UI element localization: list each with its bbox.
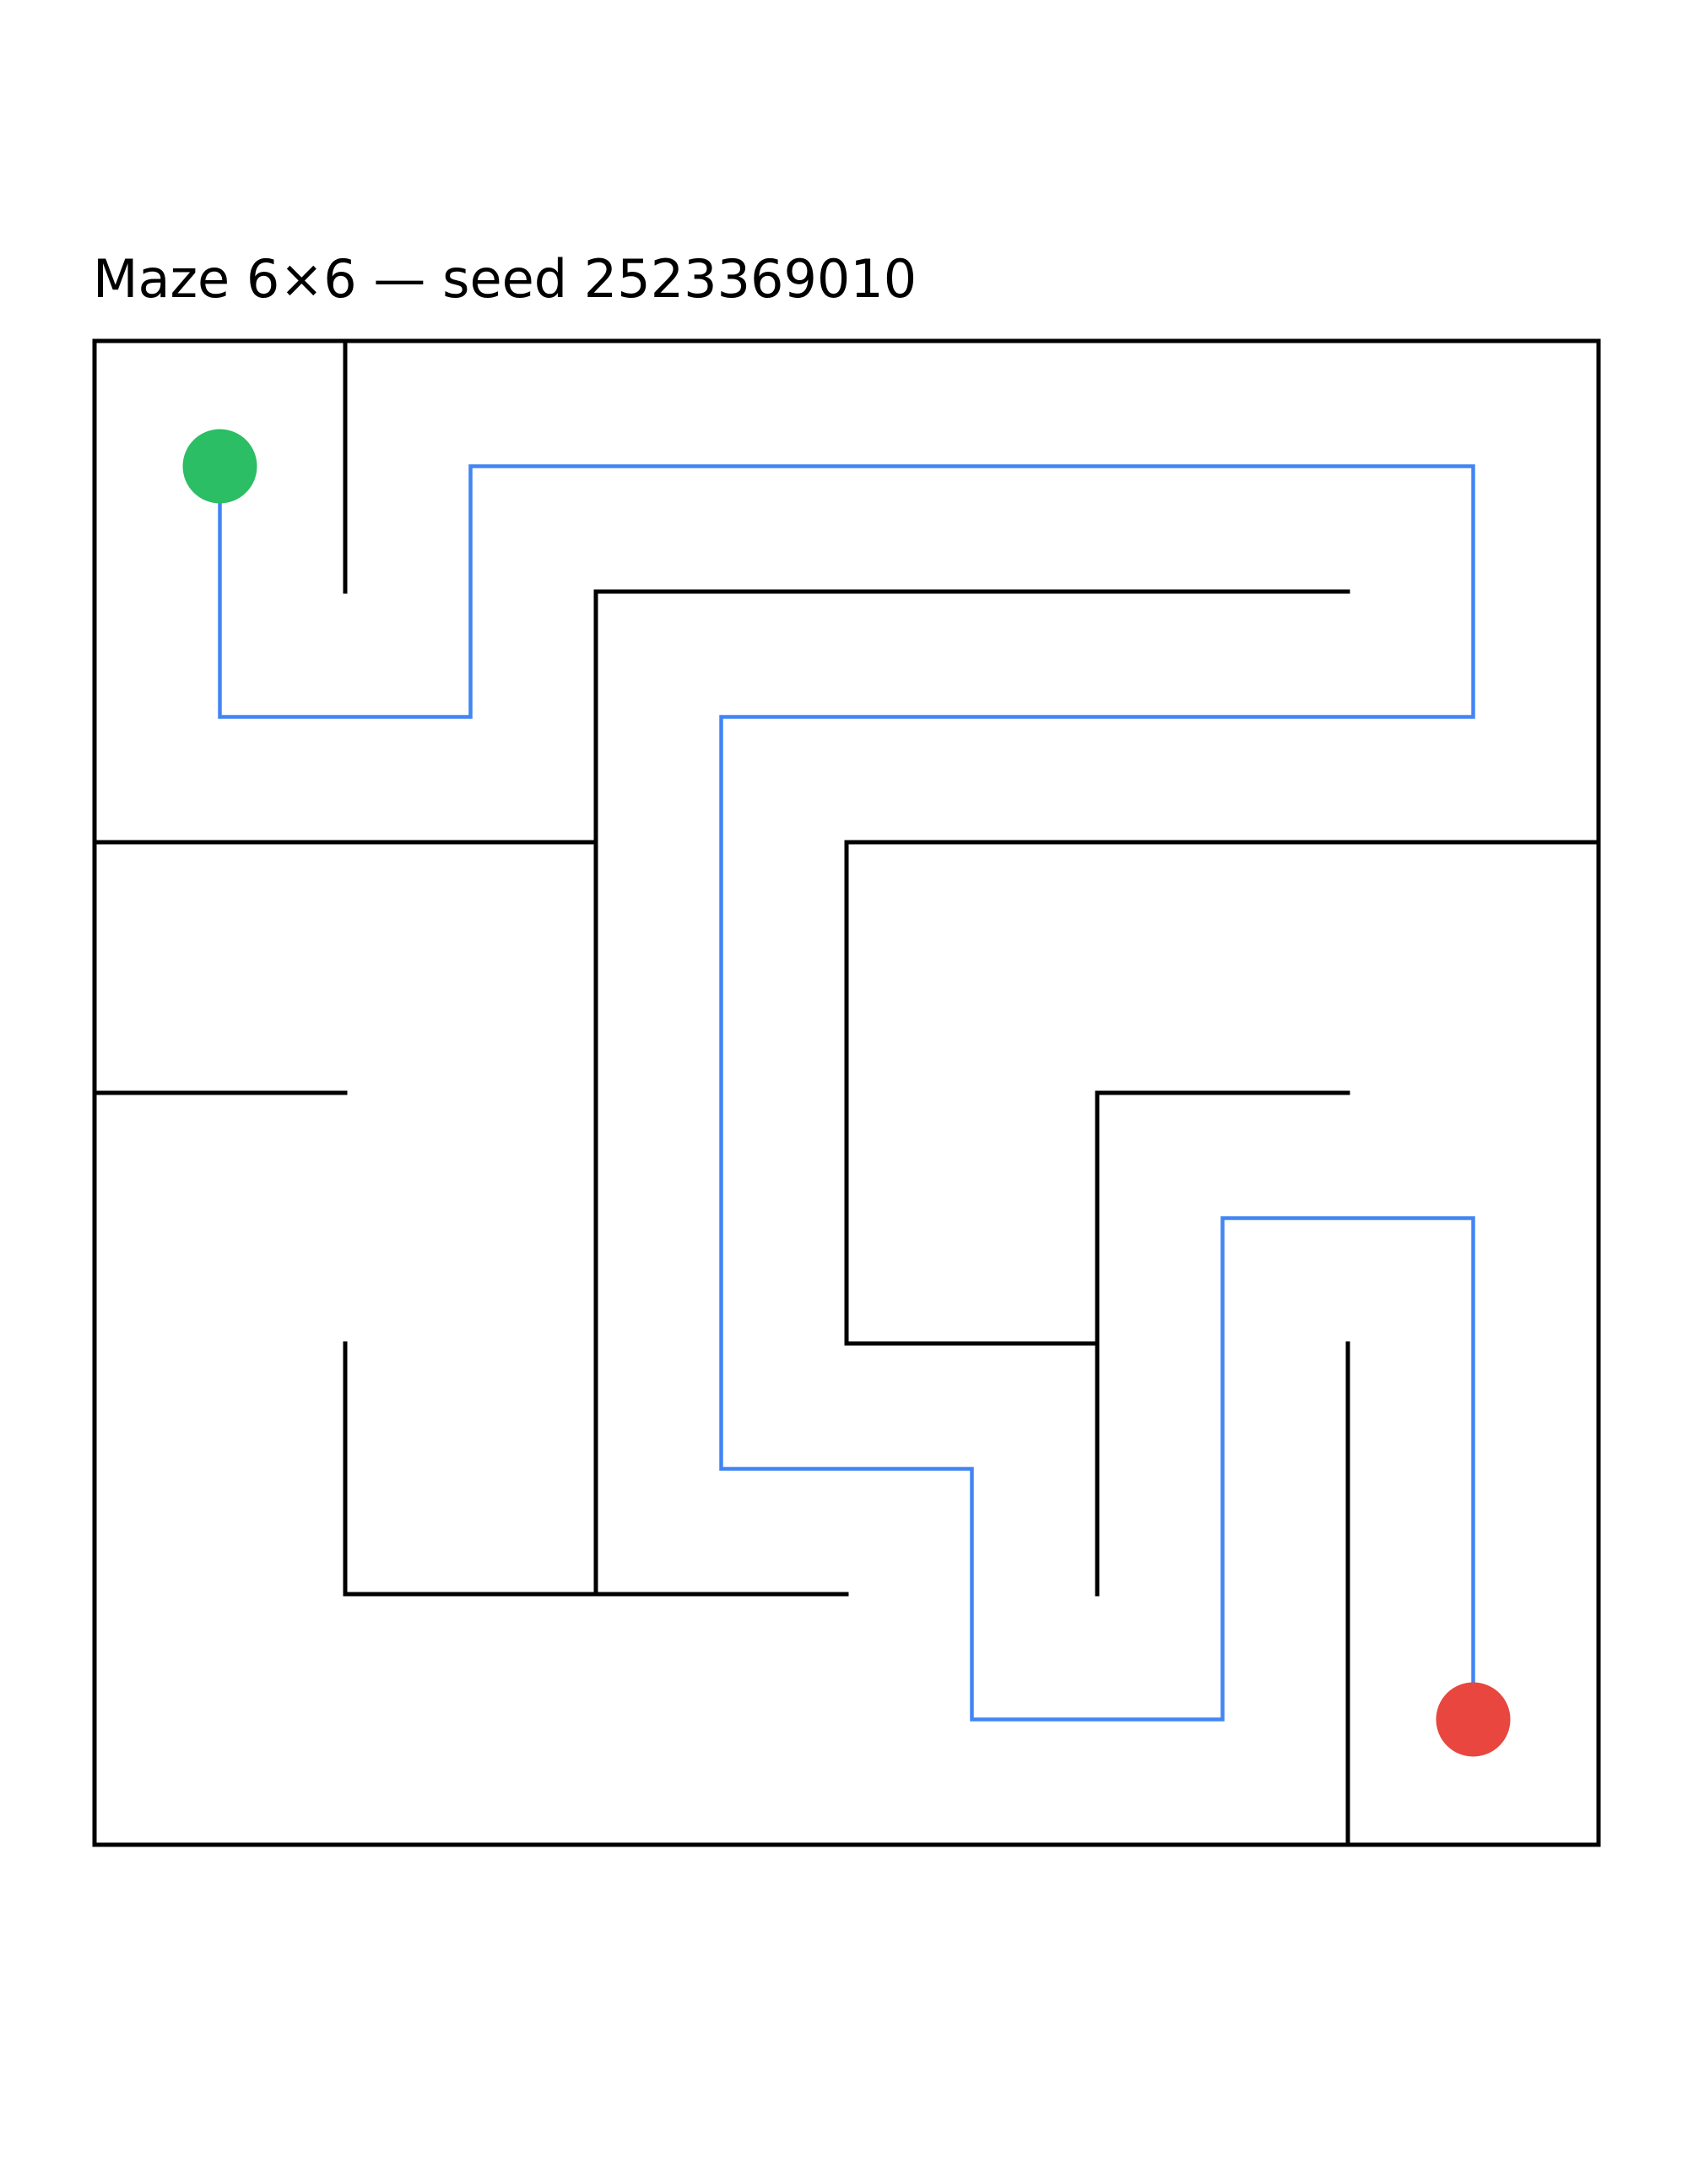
maze-canvas: [0, 0, 1688, 2184]
start-marker: [183, 430, 257, 504]
end-marker: [1436, 1683, 1511, 1757]
maze-page: Maze 6×6 — seed 2523369010: [0, 0, 1688, 2184]
